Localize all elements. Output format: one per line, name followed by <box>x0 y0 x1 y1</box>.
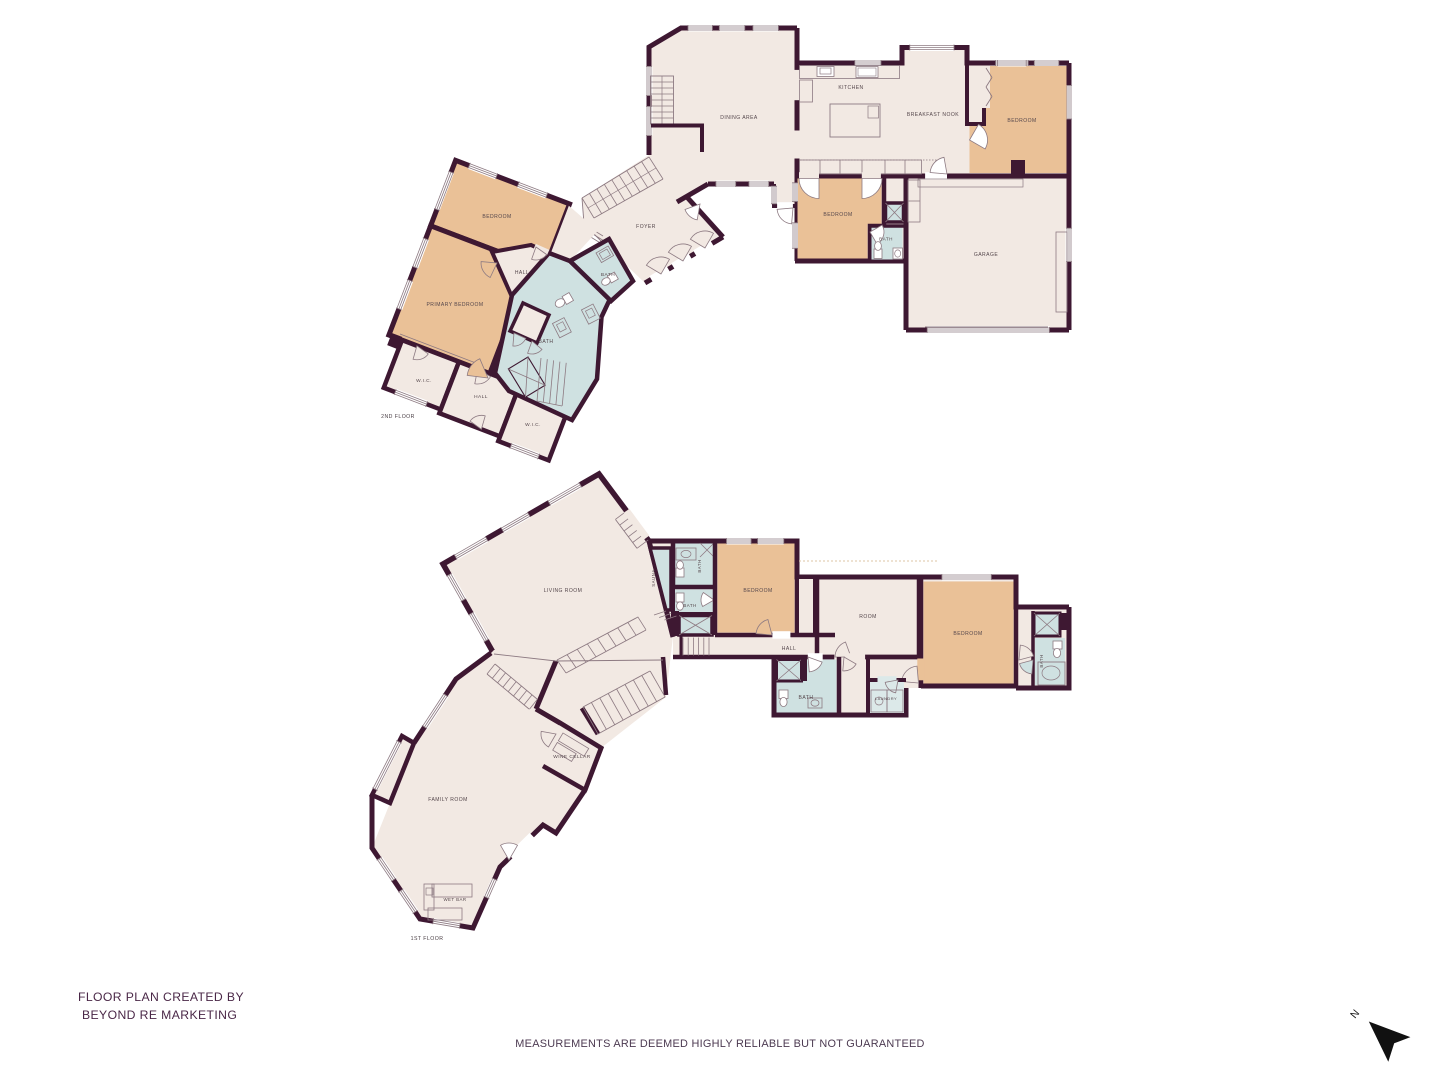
svg-text:PRIMARY BEDROOM: PRIMARY BEDROOM <box>426 302 483 308</box>
svg-text:LAUNDRY: LAUNDRY <box>875 696 897 701</box>
svg-text:BATH: BATH <box>601 272 615 278</box>
svg-text:BATH: BATH <box>697 559 702 572</box>
svg-text:GARAGE: GARAGE <box>974 252 998 258</box>
svg-text:SAUNA: SAUNA <box>651 569 656 586</box>
svg-text:BEYOND RE MARKETING: BEYOND RE MARKETING <box>82 1008 237 1022</box>
svg-text:2ND FLOOR: 2ND FLOOR <box>381 414 415 420</box>
svg-text:W.I.C.: W.I.C. <box>525 422 541 428</box>
svg-text:BATH: BATH <box>879 237 893 242</box>
svg-text:LIVING ROOM: LIVING ROOM <box>544 588 583 594</box>
svg-text:DINING AREA: DINING AREA <box>720 115 758 121</box>
svg-text:1ST FLOOR: 1ST FLOOR <box>411 936 444 942</box>
svg-text:BREAKFAST NOOK: BREAKFAST NOOK <box>907 112 959 118</box>
svg-text:BEDROOM: BEDROOM <box>743 588 772 594</box>
svg-text:BEDROOM: BEDROOM <box>953 631 982 637</box>
svg-text:HALL: HALL <box>515 270 529 276</box>
svg-text:BEDROOM: BEDROOM <box>823 212 852 218</box>
svg-text:BATH: BATH <box>683 603 696 608</box>
svg-text:HALL: HALL <box>782 646 796 652</box>
svg-text:HALL: HALL <box>474 394 488 400</box>
svg-text:BEDROOM: BEDROOM <box>482 214 511 220</box>
svg-text:WINE CELLAR: WINE CELLAR <box>553 754 591 760</box>
svg-text:BATH: BATH <box>539 339 554 345</box>
svg-text:BATH: BATH <box>1039 654 1044 667</box>
svg-text:ROOM: ROOM <box>859 614 877 620</box>
svg-text:MEASUREMENTS ARE DEEMED HIGHLY: MEASUREMENTS ARE DEEMED HIGHLY RELIABLE … <box>515 1038 924 1050</box>
svg-text:FOYER: FOYER <box>636 224 656 230</box>
svg-text:KITCHEN: KITCHEN <box>838 85 863 91</box>
svg-text:WET BAR: WET BAR <box>443 897 466 902</box>
svg-text:BATH: BATH <box>799 695 814 701</box>
svg-text:FAMILY ROOM: FAMILY ROOM <box>428 797 468 803</box>
svg-text:W.I.C.: W.I.C. <box>416 378 432 384</box>
svg-text:BEDROOM: BEDROOM <box>1007 118 1036 124</box>
svg-text:FLOOR PLAN CREATED BY: FLOOR PLAN CREATED BY <box>78 990 244 1004</box>
